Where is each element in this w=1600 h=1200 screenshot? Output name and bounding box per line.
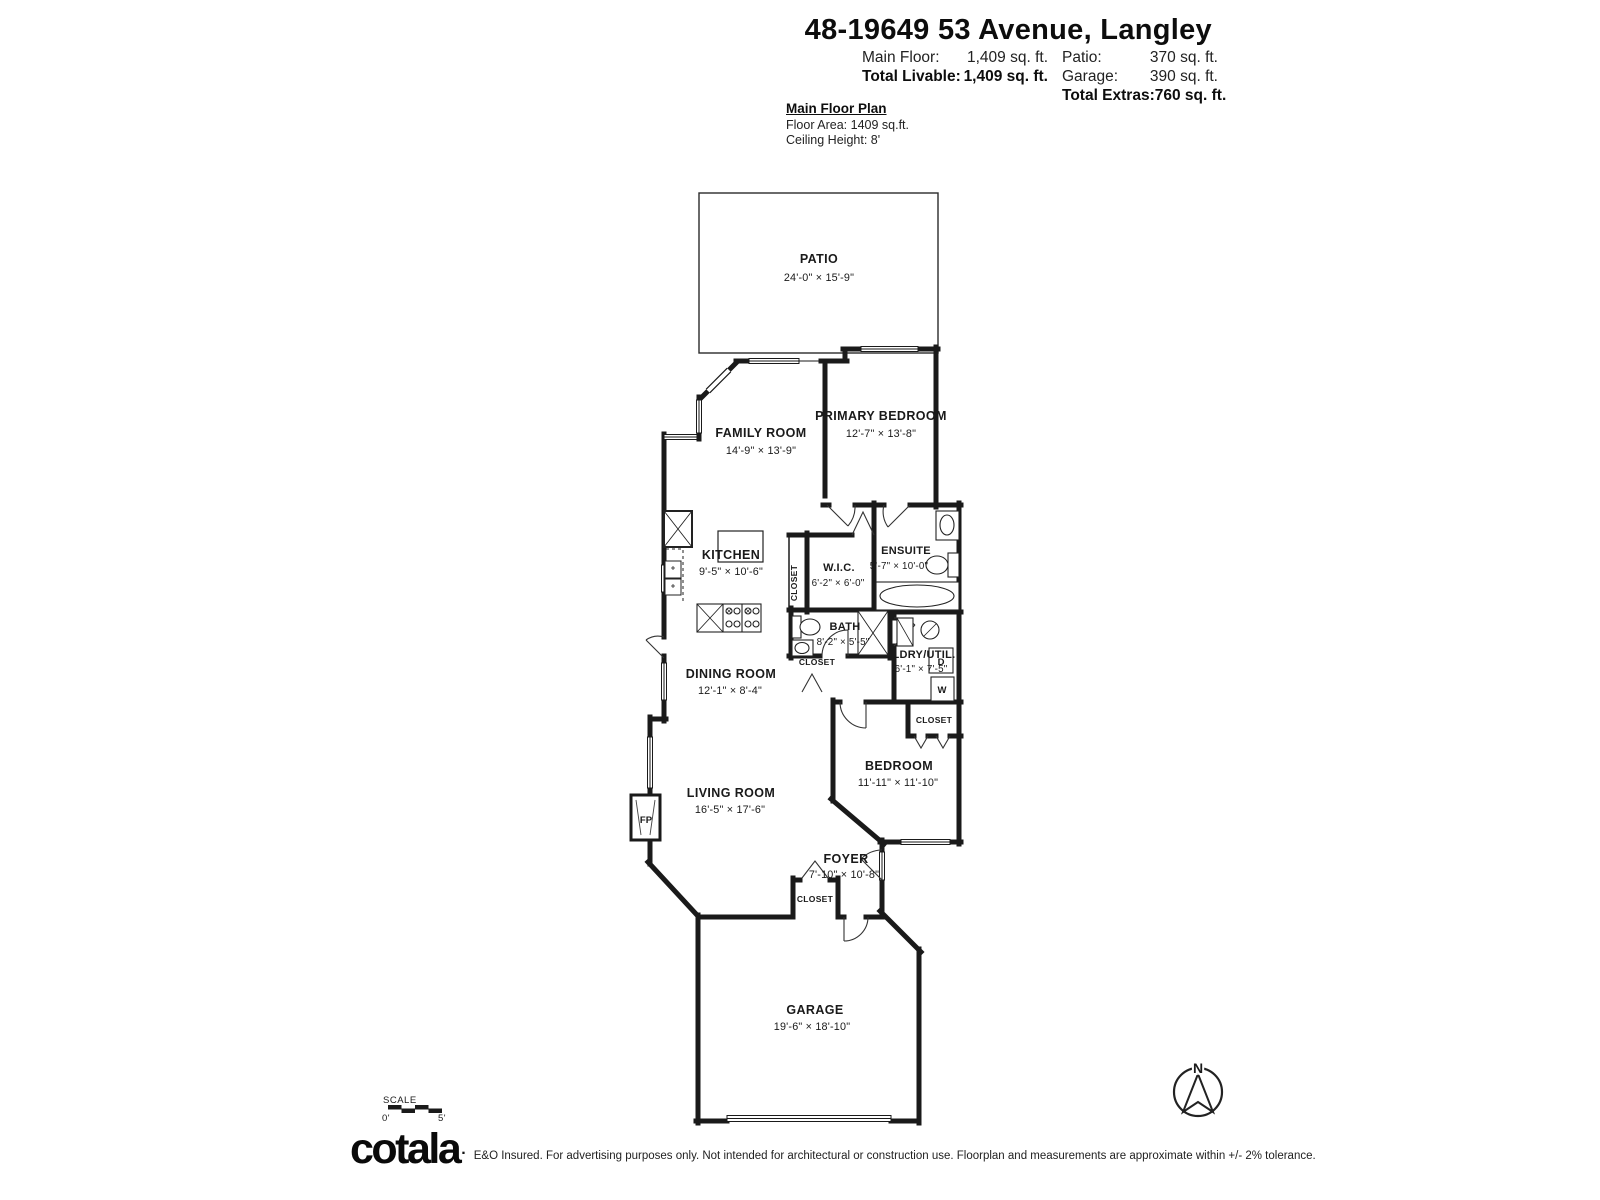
room-dims: 24'-0" × 15'-9" [784,272,854,284]
ensuite-toilet [926,556,948,574]
scale-start: 0' [382,1113,390,1124]
room-dims: 12'-7" × 13'-8" [846,428,916,440]
bay-diagonal-window [706,368,731,393]
scale-bar: SCALE 0' 5' [382,1095,446,1124]
dryer-label: D [938,657,945,668]
room-label-bedroom: BEDROOM 11'-11" × 11'-10" [858,759,938,789]
room-dims: 14'-9" × 13'-9" [726,445,796,457]
hall-closet-label: CLOSET [799,657,836,667]
room-label-wic: W.I.C. 6'-2" × 6'-0" [812,562,865,589]
room-name: LDRY/UTIL. [892,649,955,661]
bedroom-door [840,702,866,728]
garage-entry-door [844,917,868,941]
room-dims: 7'-10" × 10'-8" [809,869,879,881]
room-label-living: LIVING ROOM 16'-5" × 17'-6" [687,786,775,816]
shower [858,611,888,655]
fireplace-label: FP [640,815,653,826]
room-dims: 9'-5" × 10'-6" [699,566,763,578]
room-dims: 6'-2" × 6'-0" [812,578,865,589]
north-compass: N [1174,1060,1222,1116]
room-label-garage: GARAGE 19'-6" × 18'-10" [774,1003,851,1033]
kitchen-side-door [646,636,664,658]
wic-door [852,512,874,535]
hall-closet-vertical-label: CLOSET [789,564,799,601]
room-label-dining: DINING ROOM 12'-1" × 8'-4" [686,667,777,697]
washer-label: W [938,685,947,696]
room-name: KITCHEN [702,548,760,562]
room-label-primary: PRIMARY BEDROOM 12'-7" × 13'-8" [815,409,947,440]
room-dims: 8'-2" × 5'-5" [817,637,870,648]
hall-closet-door [802,674,822,692]
logo-period: . [461,1133,465,1167]
ensuite-toilet-tank [948,553,959,577]
room-label-ensuite: ENSUITE 5'-7" × 10'-0" [870,545,931,572]
ensuite-door [883,505,910,527]
range-counter [697,604,761,632]
room-dims: 16'-5" × 17'-6" [695,804,765,816]
primary-bedroom-door [827,505,855,526]
foyer-closet-label: CLOSET [797,894,834,904]
footer: cotala . E&O Insured. For advertising pu… [350,1131,1316,1167]
room-name: PRIMARY BEDROOM [815,409,947,423]
garage-door [727,1116,891,1122]
north-label: N [1193,1060,1203,1076]
bedroom-closet-label: CLOSET [916,715,953,725]
room-name: DINING ROOM [686,667,777,681]
room-name: GARAGE [786,1003,843,1017]
room-name: FOYER [823,852,868,866]
room-name: W.I.C. [823,562,855,574]
room-name: BATH [830,621,861,633]
room-label-kitchen: KITCHEN 9'-5" × 10'-6" [699,548,763,578]
room-name: FAMILY ROOM [715,426,806,440]
scale-end: 5' [438,1113,446,1124]
room-name: PATIO [800,252,838,266]
room-label-family: FAMILY ROOM 14'-9" × 13'-9" [715,426,806,457]
room-dims: 5'-7" × 10'-0" [870,561,929,572]
disclaimer-text: E&O Insured. For advertising purposes on… [474,1149,1316,1167]
scale-label: SCALE [383,1095,417,1106]
room-dims: 11'-11" × 11'-10" [858,777,938,789]
room-name: LIVING ROOM [687,786,775,800]
bath-fixtures [792,611,888,656]
bath-toilet [800,619,820,635]
floor-plan-svg: FP PATIO 24'-0" × 15'-9" FAMILY ROOM 14'… [0,0,1600,1200]
room-dims: 12'-1" × 8'-4" [698,685,762,697]
room-label-patio: PATIO 24'-0" × 15'-9" [784,252,854,284]
room-name: BEDROOM [865,759,933,773]
room-dims: 19'-6" × 18'-10" [774,1021,851,1033]
kitchen-sink [665,561,681,595]
north-arrow-icon [1183,1074,1213,1112]
room-name: ENSUITE [881,545,931,557]
cotala-logo: cotala [350,1131,459,1167]
fireplace: FP [631,795,660,840]
